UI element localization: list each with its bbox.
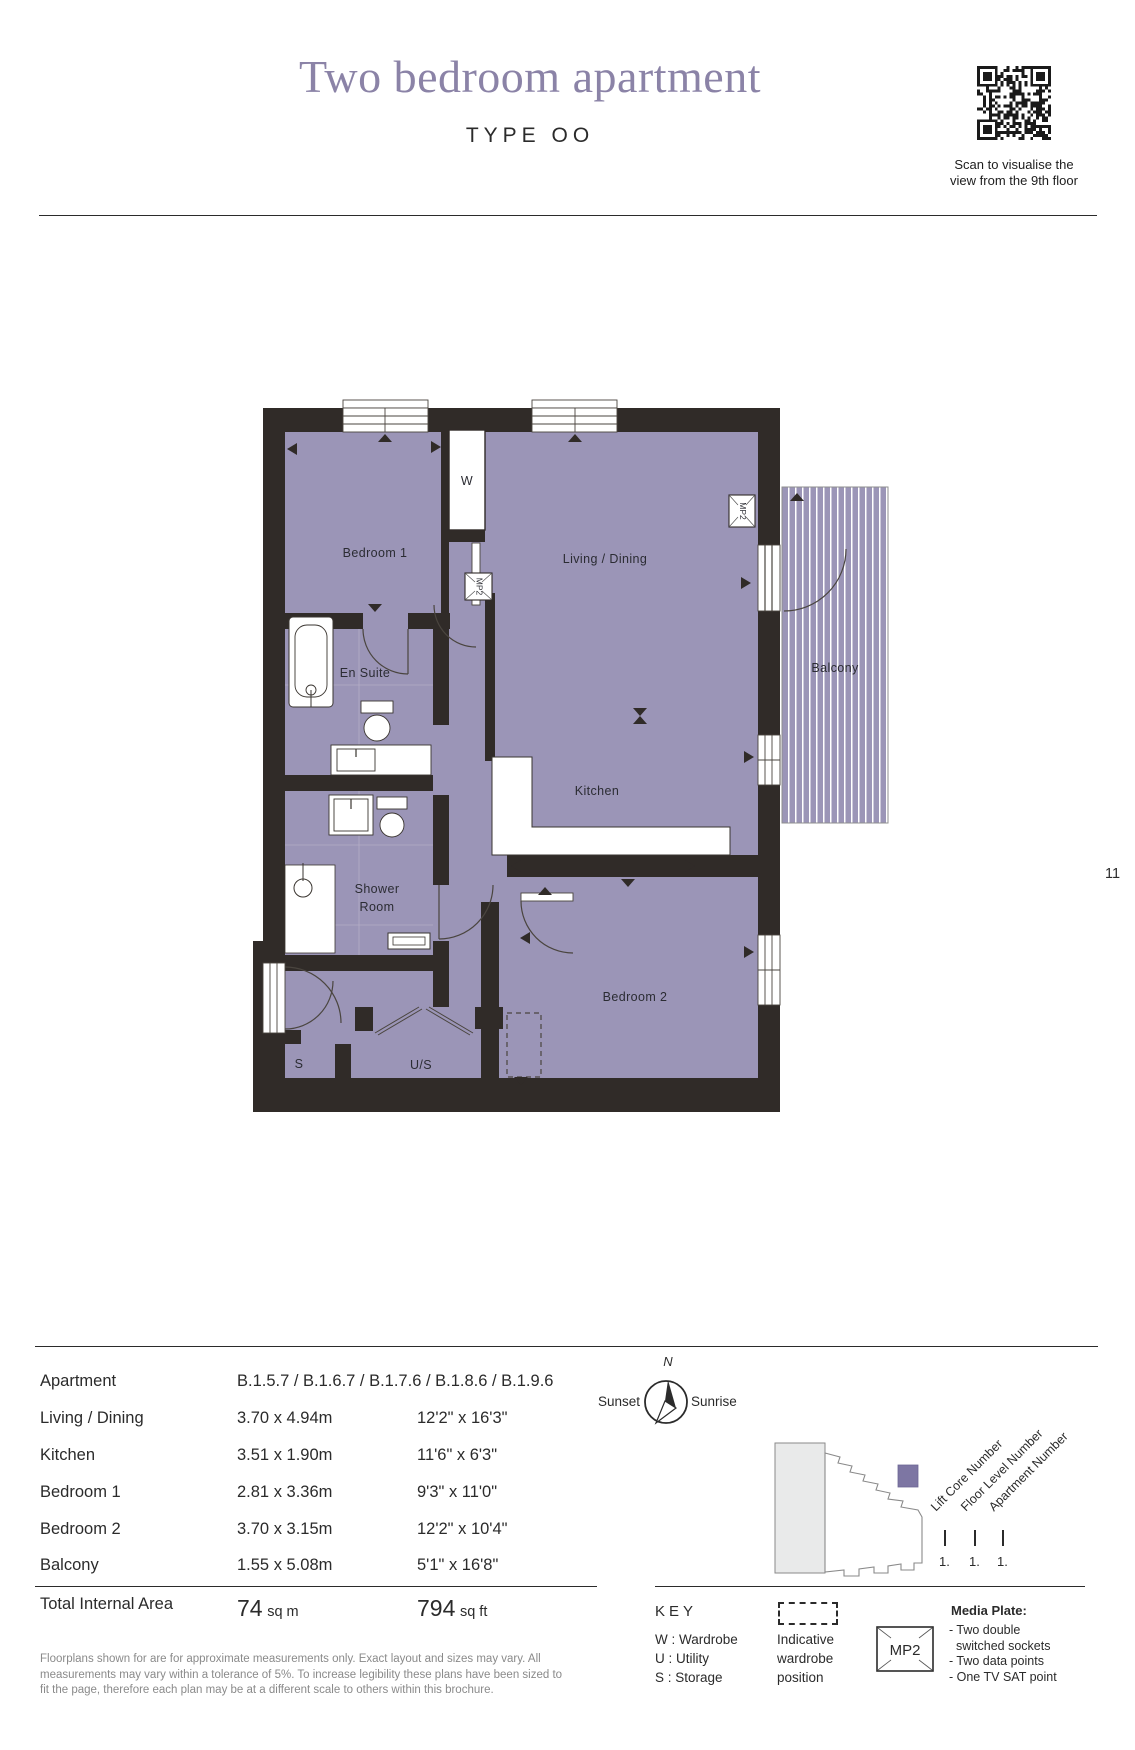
media-plate-title: Media Plate: [951, 1603, 1027, 1618]
wardrobe-label: W [461, 474, 473, 488]
balcony-label: Balcony [811, 661, 859, 675]
media-plate-line3: - Two data points [949, 1654, 1057, 1670]
building-locator-map [770, 1435, 930, 1585]
media-plate-details: - Two double switched sockets - Two data… [949, 1623, 1057, 1685]
wardrobe-note-line3: position [777, 1668, 834, 1687]
media-plate-line1: - Two double [949, 1623, 1057, 1639]
window-bedroom1 [343, 400, 428, 432]
table-row: Living / Dining 3.70 x 4.94m 12'2" x 16'… [35, 1409, 1098, 1433]
compass-icon: N [598, 1350, 738, 1445]
wardrobe-closet: W [449, 430, 485, 530]
bath [289, 617, 333, 707]
header-divider [39, 215, 1097, 216]
apartment-type-subtitle: TYPE OO [0, 124, 1060, 148]
locator-value-apartment: 1. [997, 1554, 1008, 1569]
bedroom1-label: Bedroom 1 [343, 546, 408, 560]
media-plate-label: MP2 [738, 502, 748, 520]
row-label: Apartment [40, 1372, 116, 1391]
media-plate-line2: switched sockets [956, 1639, 1057, 1655]
table-row: Apartment B.1.5.7 / B.1.6.7 / B.1.7.6 / … [35, 1372, 1098, 1396]
disclaimer-line3: fit the page, therefore each plan may be… [40, 1683, 580, 1699]
qr-caption-line1: Scan to visualise the [928, 157, 1100, 173]
key-item-storage: S : Storage [655, 1668, 738, 1687]
key-divider [655, 1586, 1085, 1587]
row-imperial: 11'6" x 6'3" [417, 1446, 497, 1465]
brochure-page: Two bedroom apartment TYPE OO Scan to vi… [0, 0, 1135, 1750]
row-imperial: 5'1" x 16'8" [417, 1556, 498, 1575]
row-imperial: 12'2" x 10'4" [417, 1520, 508, 1539]
row-metric: 3.51 x 1.90m [237, 1446, 332, 1465]
locator-value-lift-core: 1. [939, 1554, 950, 1569]
total-row: Total Internal Area 74 sq m 794 sq ft [35, 1595, 1098, 1619]
floor-plan: Balcony [225, 385, 895, 1115]
ensuite-label: En Suite [340, 666, 390, 680]
locator-value-floor-level: 1. [969, 1554, 980, 1569]
qr-caption: Scan to visualise the view from the 9th … [928, 157, 1100, 188]
media-plate-legend-label: MP2 [890, 1642, 921, 1659]
total-sqm-value: 74 [237, 1595, 263, 1621]
kitchen-label: Kitchen [575, 784, 620, 798]
ensuite-toilet [361, 701, 393, 741]
indicative-wardrobe-note: Indicative wardrobe position [777, 1630, 834, 1687]
row-metric: B.1.5.7 / B.1.6.7 / B.1.7.6 / B.1.8.6 / … [237, 1372, 553, 1391]
key-heading: KEY [655, 1603, 697, 1620]
row-metric: 1.55 x 5.08m [237, 1556, 332, 1575]
media-plate-box-hall: MP2 [465, 573, 492, 600]
locator-highlighted-unit [898, 1465, 918, 1487]
locator-tick [974, 1530, 976, 1546]
table-row: Kitchen 3.51 x 1.90m 11'6" x 6'3" [35, 1446, 1098, 1470]
page-title: Two bedroom apartment [0, 50, 1060, 103]
shower-vanity [329, 795, 373, 835]
locator-tick [1002, 1530, 1004, 1546]
bedroom2-label: Bedroom 2 [603, 990, 668, 1004]
total-sqm-unit: sq m [267, 1604, 298, 1620]
page-number: 11 [1105, 866, 1120, 882]
row-imperial: 12'2" x 16'3" [417, 1409, 508, 1428]
qr-caption-line2: view from the 9th floor [928, 173, 1100, 189]
row-label: Kitchen [40, 1446, 95, 1465]
media-plate-line4: - One TV SAT point [949, 1670, 1057, 1686]
table-top-rule [35, 1346, 1098, 1347]
total-sqft-unit: sq ft [460, 1604, 487, 1620]
row-metric: 2.81 x 3.36m [237, 1483, 332, 1502]
key-item-wardrobe: W : Wardrobe [655, 1630, 738, 1649]
window-bedroom2 [758, 935, 780, 1005]
key-item-utility: U : Utility [655, 1649, 738, 1668]
total-label: Total Internal Area [40, 1595, 173, 1614]
locator-tick [944, 1530, 946, 1546]
disclaimer: Floorplans shown for are for approximate… [40, 1652, 580, 1699]
row-metric: 3.70 x 3.15m [237, 1520, 332, 1539]
key-items: W : Wardrobe U : Utility S : Storage [655, 1630, 738, 1687]
row-label: Living / Dining [40, 1409, 144, 1428]
disclaimer-line1: Floorplans shown for are for approximate… [40, 1652, 580, 1668]
compass-north-label: N [663, 1354, 673, 1369]
row-label: Bedroom 2 [40, 1520, 121, 1539]
window-living [532, 400, 617, 432]
wardrobe-note-line1: Indicative [777, 1630, 834, 1649]
row-imperial: 9'3" x 11'0" [417, 1483, 497, 1502]
media-plate-label: MP2 [474, 578, 484, 596]
disclaimer-line2: measurements may vary within a tolerance… [40, 1668, 580, 1684]
shower-room-label-line2: Room [360, 900, 395, 914]
table-total-rule [35, 1586, 597, 1587]
media-plate-box-living: MP2 [729, 495, 755, 527]
table-row: Bedroom 2 3.70 x 3.15m 12'2" x 10'4" [35, 1520, 1098, 1544]
living-dining-label: Living / Dining [563, 552, 648, 566]
row-metric: 3.70 x 4.94m [237, 1409, 332, 1428]
utility-storage-label: U/S [410, 1058, 432, 1072]
wash-basin [285, 863, 335, 953]
window-kitchen [758, 735, 780, 785]
entrance-door [263, 963, 285, 1033]
locator-block [775, 1443, 825, 1573]
storage-label: S [295, 1057, 304, 1071]
shower-tray [388, 933, 430, 949]
media-plate-legend-icon: MP2 [876, 1626, 934, 1672]
row-label: Balcony [40, 1556, 99, 1575]
wardrobe-note-line2: wardrobe [777, 1649, 834, 1668]
row-label: Bedroom 1 [40, 1483, 121, 1502]
balcony-area: Balcony [782, 487, 888, 823]
total-sqft-value: 794 [417, 1595, 455, 1621]
qr-code [977, 66, 1051, 140]
shower-room-label-line1: Shower [355, 882, 400, 896]
indicative-wardrobe-icon [778, 1602, 838, 1625]
ensuite-vanity [331, 745, 431, 775]
